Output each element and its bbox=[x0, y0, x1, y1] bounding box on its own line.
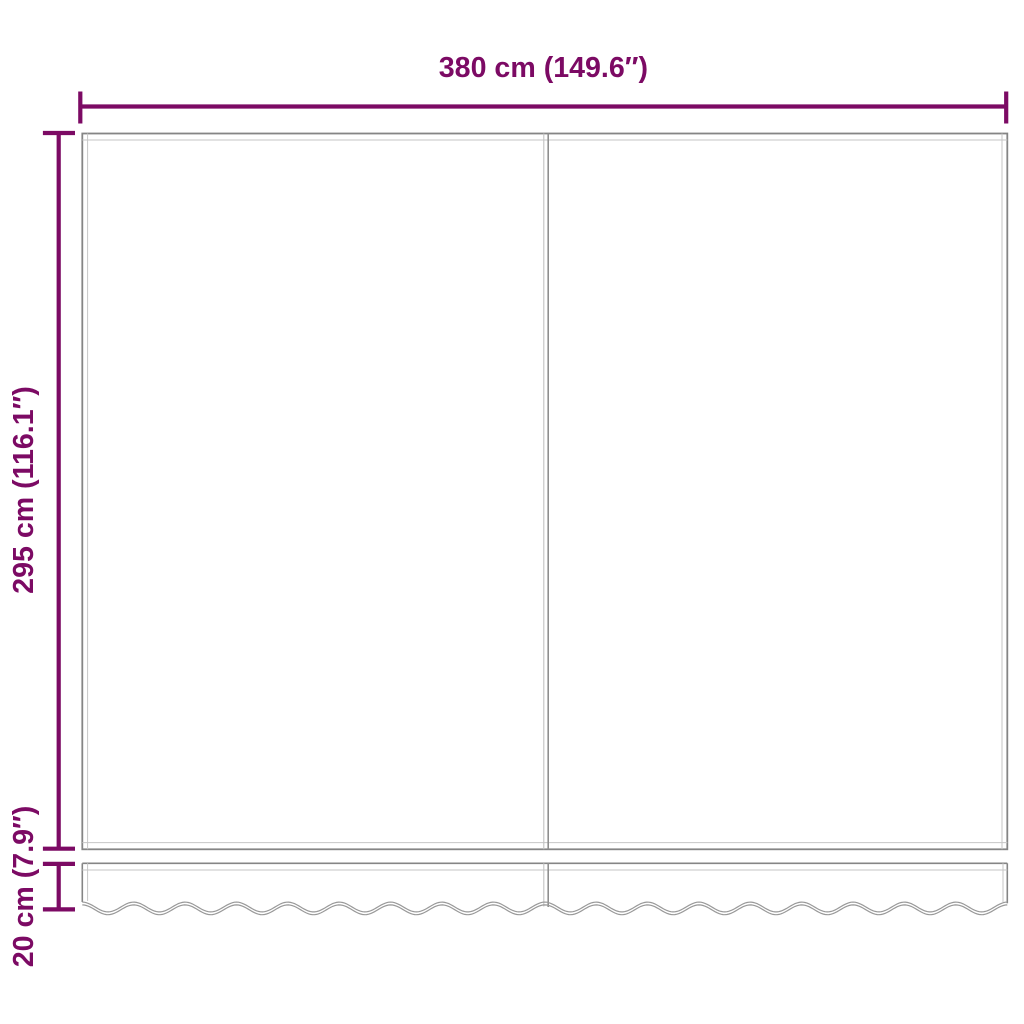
svg-text:295 cm (116.1″): 295 cm (116.1″) bbox=[8, 386, 40, 594]
svg-text:380 cm (149.6″): 380 cm (149.6″) bbox=[439, 52, 648, 84]
svg-text:20 cm (7.9″): 20 cm (7.9″) bbox=[8, 806, 40, 968]
